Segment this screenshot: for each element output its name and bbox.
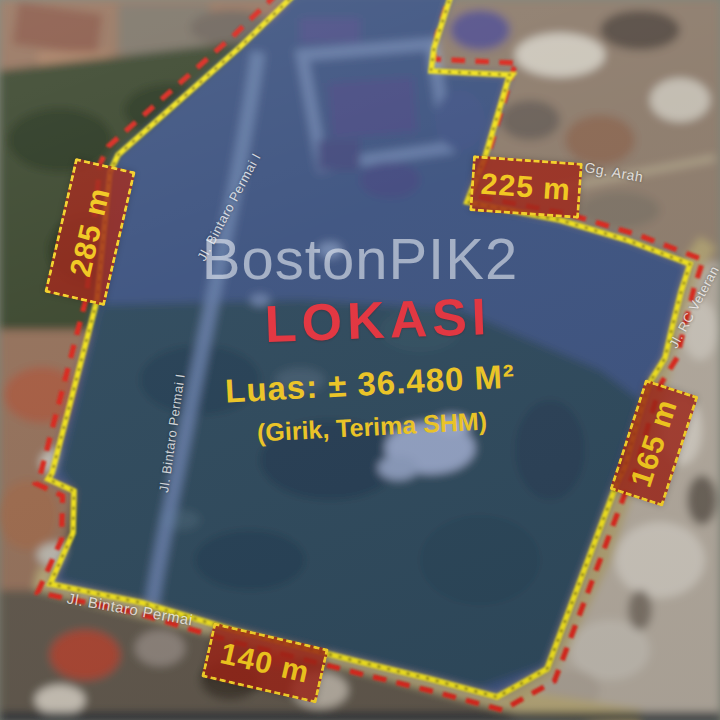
location-title: LOKASI (264, 286, 492, 354)
measurement-label: 285 m (63, 184, 116, 279)
measurement-box-225m: 225 m (469, 155, 583, 219)
watermark: BostonPIK2 (202, 225, 518, 292)
measurement-label: 140 m (217, 636, 312, 689)
measurement-label: 225 m (480, 167, 572, 207)
land-listing-flyer: Jl. Bintaro Permai I Jl. Bintaro Permai … (0, 0, 720, 720)
